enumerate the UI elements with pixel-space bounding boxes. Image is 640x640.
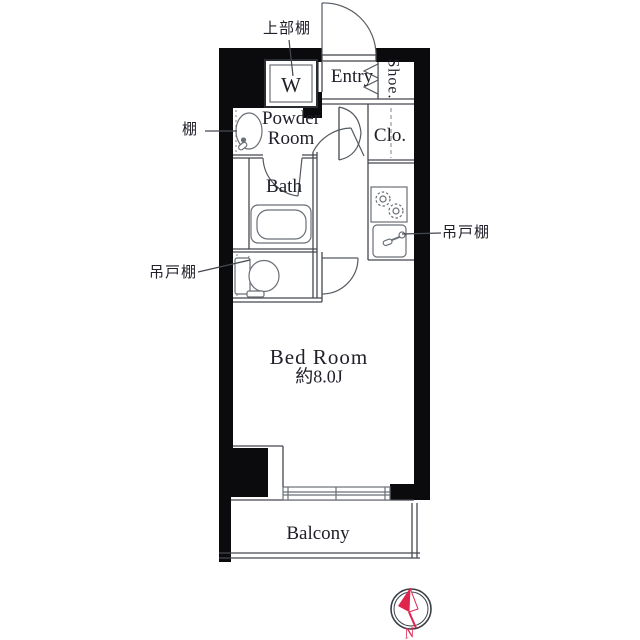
compass-north-label: N: [402, 625, 417, 640]
room-label-powder-room: Powder Room: [249, 109, 333, 149]
balcony-window-icon: [283, 487, 390, 500]
hanging-cupboard-right-label: 吊戸棚: [442, 226, 490, 242]
room-label-bedroom: Bed Room: [270, 346, 368, 368]
room-label-shoe-closet: Shoe.: [384, 59, 401, 100]
room-label-bath: Bath: [266, 177, 302, 197]
toilet-icon: [235, 258, 279, 297]
kitchen-sink-icon: [373, 225, 406, 257]
floor-plan: N 上部棚 Entry Shoe. Powder Room Clo. Bath …: [0, 0, 640, 640]
room-label-closet: Clo.: [374, 126, 406, 146]
hanging-cupboard-right-leader: [402, 233, 441, 234]
stove-icon: [371, 187, 407, 222]
bedroom-area-label: 約8.0J: [295, 368, 343, 387]
washing-machine-label: W: [281, 74, 301, 96]
upper-shelf-label: 上部棚: [263, 22, 311, 38]
room-label-entry: Entry: [331, 67, 373, 87]
bathtub-icon: [251, 205, 311, 243]
entry-door-swing-icon: [322, 3, 376, 55]
bedroom-door-swing-icon: [322, 258, 358, 294]
hanging-cupboard-left-label: 吊戸棚: [149, 266, 197, 282]
compass-icon: N: [391, 588, 431, 640]
room-label-balcony: Balcony: [286, 524, 349, 544]
shelf-label: 棚: [182, 123, 198, 139]
closet-double-door-icon: [339, 107, 361, 160]
